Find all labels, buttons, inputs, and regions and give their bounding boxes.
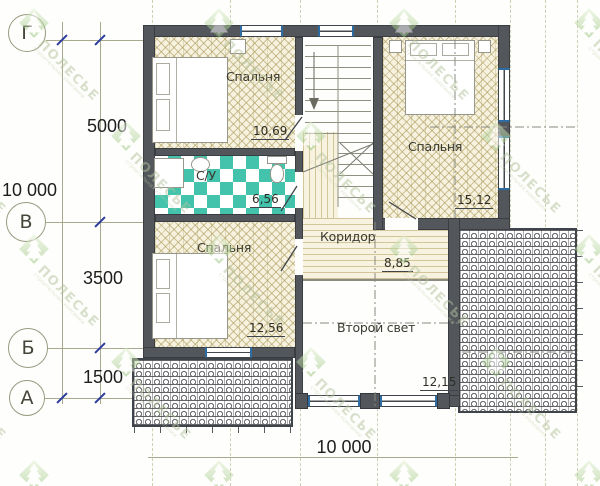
watermark-brand-text: ПОЛЕСЬЕ	[589, 37, 600, 104]
nightstand	[389, 40, 402, 53]
room-label-corridor: Коридор	[320, 229, 375, 244]
brand-watermark: ПОЛЕСЬЕстроительная компания	[200, 456, 350, 486]
room-label-bathroom: С/У	[196, 168, 216, 183]
blanket-line	[176, 254, 177, 338]
dim-10000-left: 10 000	[2, 180, 57, 201]
room-area-corridor: 8,85	[382, 256, 413, 272]
room-area-bathroom: 6,56	[250, 192, 281, 208]
window-bedroom3-bottom	[205, 347, 252, 358]
dimension-line-vertical-outer	[62, 22, 63, 404]
roof-rafter-ticks	[577, 230, 583, 412]
door-opening-bedroom3	[295, 239, 303, 275]
watermark-tagline-text: строительная компания	[32, 46, 86, 100]
axis-line-v	[46, 222, 143, 223]
blanket-line	[406, 60, 474, 61]
window-right-bedroom2-lower	[498, 136, 510, 190]
pillow	[410, 43, 437, 56]
pillow	[156, 293, 170, 323]
window-pier	[437, 393, 450, 409]
roof-rafter-ticks	[134, 427, 292, 433]
axis-letter-v: В	[19, 211, 32, 233]
roof-hatch-porch	[132, 358, 293, 427]
nightstand	[478, 40, 491, 53]
polesie-logo-icon	[570, 4, 600, 42]
blanket-line	[176, 58, 177, 142]
roof-hatch-garage	[458, 228, 577, 413]
room-area-bedroom3: 12,56	[247, 321, 285, 337]
brand-watermark: ПОЛЕСЬЕстроительная компания	[15, 456, 165, 486]
door-opening-bedroom1	[295, 115, 303, 151]
dim-5000: 5000	[82, 116, 132, 137]
axis-bubble-v: В	[6, 202, 46, 242]
watermark-brand-text: ПОЛЕСЬЕ	[0, 376, 9, 443]
pillow	[156, 99, 170, 131]
pillow	[156, 63, 170, 95]
toilet-tank	[267, 156, 287, 164]
polesie-logo-icon	[200, 456, 238, 486]
wall-exterior-right	[498, 25, 510, 230]
axis-letter-b: Б	[21, 337, 34, 359]
watermark-tagline-text: строительная компания	[587, 46, 600, 100]
window-second-light-left	[308, 395, 360, 407]
watermark-brand-text: ПОЛЕСЬЕ	[589, 263, 600, 330]
pillow	[442, 43, 469, 56]
axis-letter-a: А	[21, 387, 34, 409]
window-pier	[295, 393, 308, 409]
window-second-light-right	[380, 395, 437, 407]
door-opening-bathroom	[295, 172, 303, 208]
stair-treads-upper	[305, 45, 371, 137]
polesie-logo-icon	[385, 456, 423, 486]
pillow	[156, 259, 170, 289]
room-label-second-light: Второй свет	[337, 320, 415, 335]
wall-bathroom-bottom	[155, 214, 295, 222]
watermark-brand-text: ПОЛЕСЬЕ	[34, 37, 101, 104]
axis-bubble-a: А	[9, 380, 45, 416]
window-right-bedroom2-upper	[498, 68, 510, 122]
window-top-stairwell	[318, 25, 354, 37]
shower-tray	[154, 158, 184, 188]
dim-10000-bottom: 10 000	[314, 437, 374, 458]
toilet-bowl	[270, 164, 284, 183]
room-area-bedroom2: 15,12	[455, 193, 493, 209]
watermark-tagline-text: строительная компания	[32, 272, 86, 326]
wall-stairwell-right	[373, 37, 383, 230]
stair-treads-lower	[338, 142, 373, 206]
room-label-bedroom3: Спальня	[197, 240, 251, 255]
watermark-tagline-text: строительная компания	[587, 272, 600, 326]
nightstand	[230, 39, 246, 54]
floor-plan-canvas: Г В Б А 5000 10 000 3500 1500 10 000	[0, 0, 600, 486]
polesie-logo-icon	[570, 456, 600, 486]
brand-watermark: ПОЛЕСЬЕстроительная компания	[570, 456, 600, 486]
brand-watermark: ПОЛЕСЬЕстроительная компания	[570, 4, 600, 114]
wall-bathroom-top	[155, 148, 295, 156]
window-pier	[360, 393, 380, 409]
axis-bubble-g: Г	[8, 14, 46, 52]
door-opening-bedroom2	[385, 218, 418, 230]
wall-interior-spine	[295, 37, 303, 407]
room-label-bedroom1: Спальня	[226, 69, 280, 84]
dim-3500: 3500	[79, 268, 127, 289]
brand-watermark: ПОЛЕСЬЕстроительная компания	[385, 456, 535, 486]
window-top-bedroom1	[240, 25, 283, 37]
room-area-bedroom1: 10,69	[251, 124, 289, 140]
axis-bubble-b: Б	[8, 328, 48, 368]
polesie-logo-icon	[15, 456, 53, 486]
dim-1500: 1500	[79, 367, 127, 388]
axis-letter-g: Г	[21, 22, 33, 44]
floor-stair-landing-planks	[303, 132, 338, 218]
room-label-bedroom2: Спальня	[408, 139, 462, 154]
room-area-second-light: 12,15	[420, 375, 458, 391]
axis-line-b	[48, 348, 143, 349]
